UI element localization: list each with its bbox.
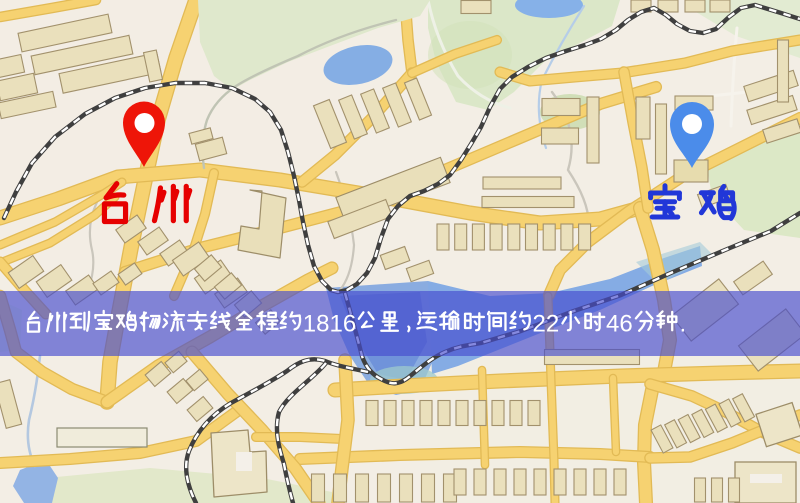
svg-text:1816: 1816	[303, 311, 356, 338]
svg-text:22: 22	[533, 311, 560, 338]
svg-text:.: .	[680, 311, 687, 338]
svg-text:46: 46	[606, 311, 633, 338]
